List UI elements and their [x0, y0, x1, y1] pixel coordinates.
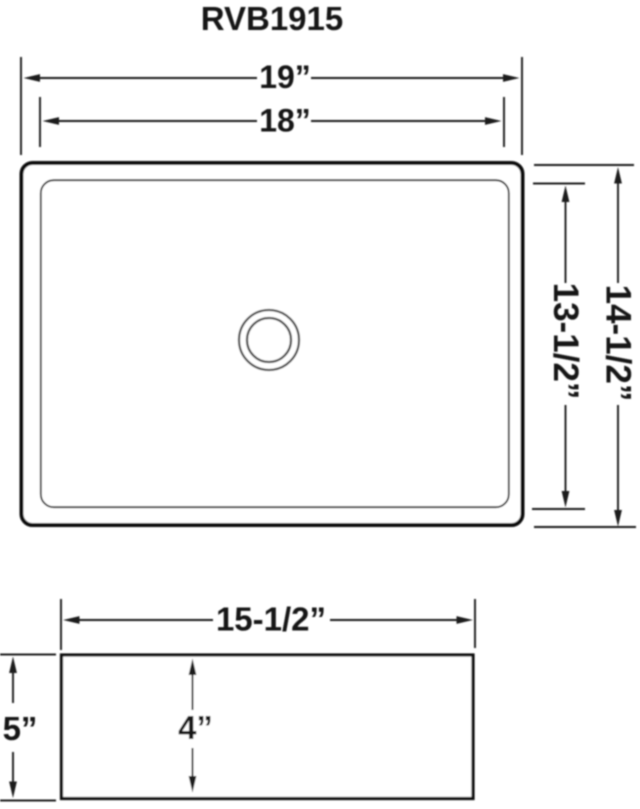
svg-text:15-1/2”: 15-1/2”: [216, 601, 326, 638]
svg-text:4”: 4”: [178, 709, 213, 746]
svg-text:19”: 19”: [259, 59, 311, 95]
svg-text:14-1/2”: 14-1/2”: [599, 285, 638, 402]
svg-text:RVB1915: RVB1915: [201, 0, 344, 37]
svg-text:18”: 18”: [259, 103, 311, 139]
svg-text:5”: 5”: [3, 710, 38, 747]
svg-text:13-1/2”: 13-1/2”: [546, 283, 585, 400]
